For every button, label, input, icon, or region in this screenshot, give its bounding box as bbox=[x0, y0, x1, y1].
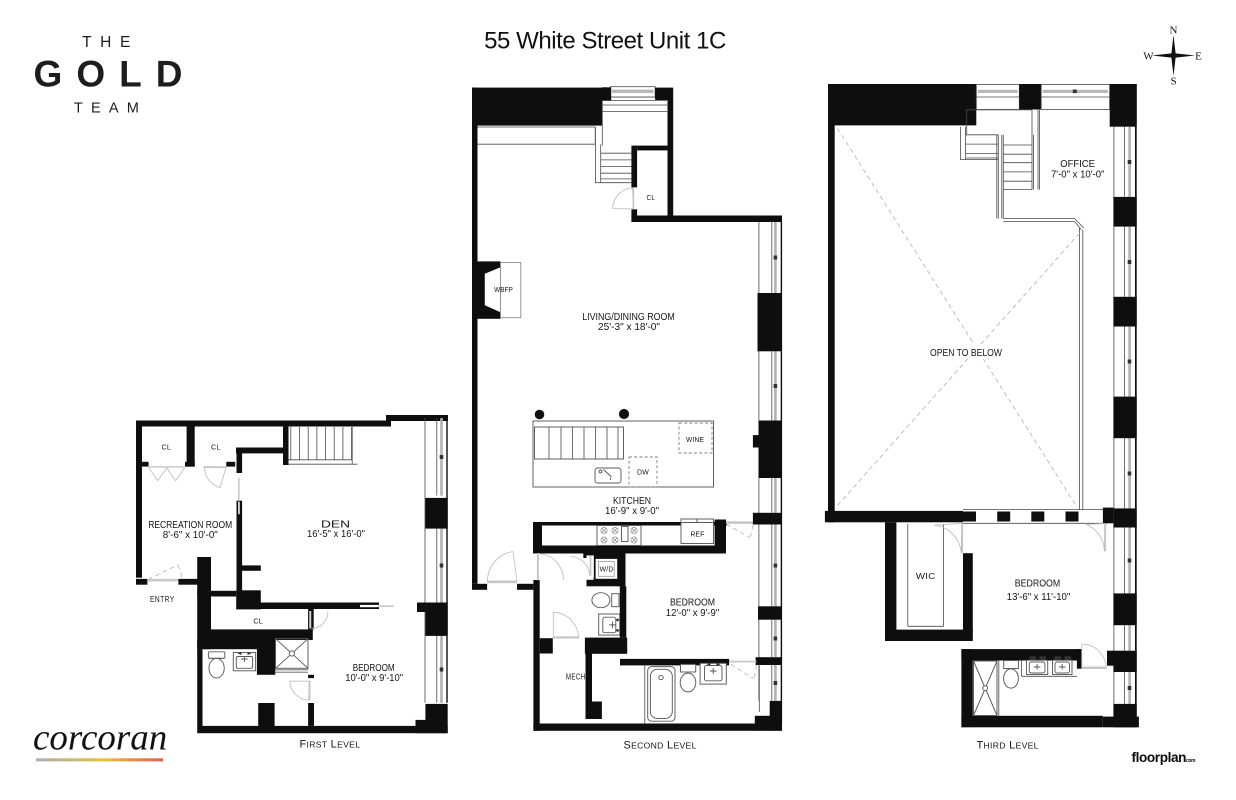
svg-text:THE: THE bbox=[82, 34, 139, 51]
svg-text:WINE: WINE bbox=[686, 437, 704, 444]
svg-text:S: S bbox=[1170, 76, 1176, 88]
svg-text:CL: CL bbox=[253, 619, 263, 626]
svg-text:16'-9" x 9'-0": 16'-9" x 9'-0" bbox=[605, 506, 659, 517]
svg-text:corcoran: corcoran bbox=[33, 718, 167, 759]
svg-text:12'-0" x 9'-9": 12'-0" x 9'-9" bbox=[666, 608, 720, 619]
svg-text:REF: REF bbox=[691, 531, 705, 538]
svg-text:THIRD LEVEL: THIRD LEVEL bbox=[977, 740, 1039, 752]
svg-text:CL: CL bbox=[162, 445, 172, 452]
svg-text:E: E bbox=[1195, 51, 1202, 63]
svg-text:OFFICE: OFFICE bbox=[1060, 159, 1095, 170]
svg-text:WBFP: WBFP bbox=[494, 287, 513, 294]
svg-text:DW: DW bbox=[637, 470, 649, 477]
svg-text:CL: CL bbox=[647, 195, 656, 202]
svg-text:55 White Street Unit 1C: 55 White Street Unit 1C bbox=[484, 28, 726, 55]
svg-text:ENTRY: ENTRY bbox=[150, 595, 175, 604]
svg-text:25'-3" x 18'-0": 25'-3" x 18'-0" bbox=[598, 322, 660, 333]
svg-text:SECOND LEVEL: SECOND LEVEL bbox=[624, 739, 697, 751]
svg-text:W/D: W/D bbox=[600, 566, 614, 573]
svg-text:WIC: WIC bbox=[916, 572, 936, 581]
svg-text:13'-6" x 11'-10": 13'-6" x 11'-10" bbox=[1007, 592, 1071, 603]
svg-text:CL: CL bbox=[211, 445, 221, 452]
svg-text:MECH: MECH bbox=[566, 672, 586, 681]
svg-text:N: N bbox=[1170, 25, 1178, 37]
svg-text:OPEN TO BELOW: OPEN TO BELOW bbox=[930, 348, 1002, 359]
svg-text:16'-5" x 16'-0": 16'-5" x 16'-0" bbox=[307, 529, 365, 540]
svg-text:FIRST LEVEL: FIRST LEVEL bbox=[300, 738, 361, 750]
svg-text:7'-0" x 10'-0": 7'-0" x 10'-0" bbox=[1051, 170, 1105, 181]
svg-text:W: W bbox=[1143, 51, 1154, 63]
svg-text:8'-6" x 10'-0": 8'-6" x 10'-0" bbox=[163, 530, 218, 541]
svg-text:TEAM: TEAM bbox=[74, 101, 147, 117]
svg-text:GOLD: GOLD bbox=[34, 54, 197, 95]
svg-text:10'-0" x 9'-10": 10'-0" x 9'-10" bbox=[345, 673, 403, 684]
svg-text:BEDROOM: BEDROOM bbox=[1015, 579, 1061, 590]
